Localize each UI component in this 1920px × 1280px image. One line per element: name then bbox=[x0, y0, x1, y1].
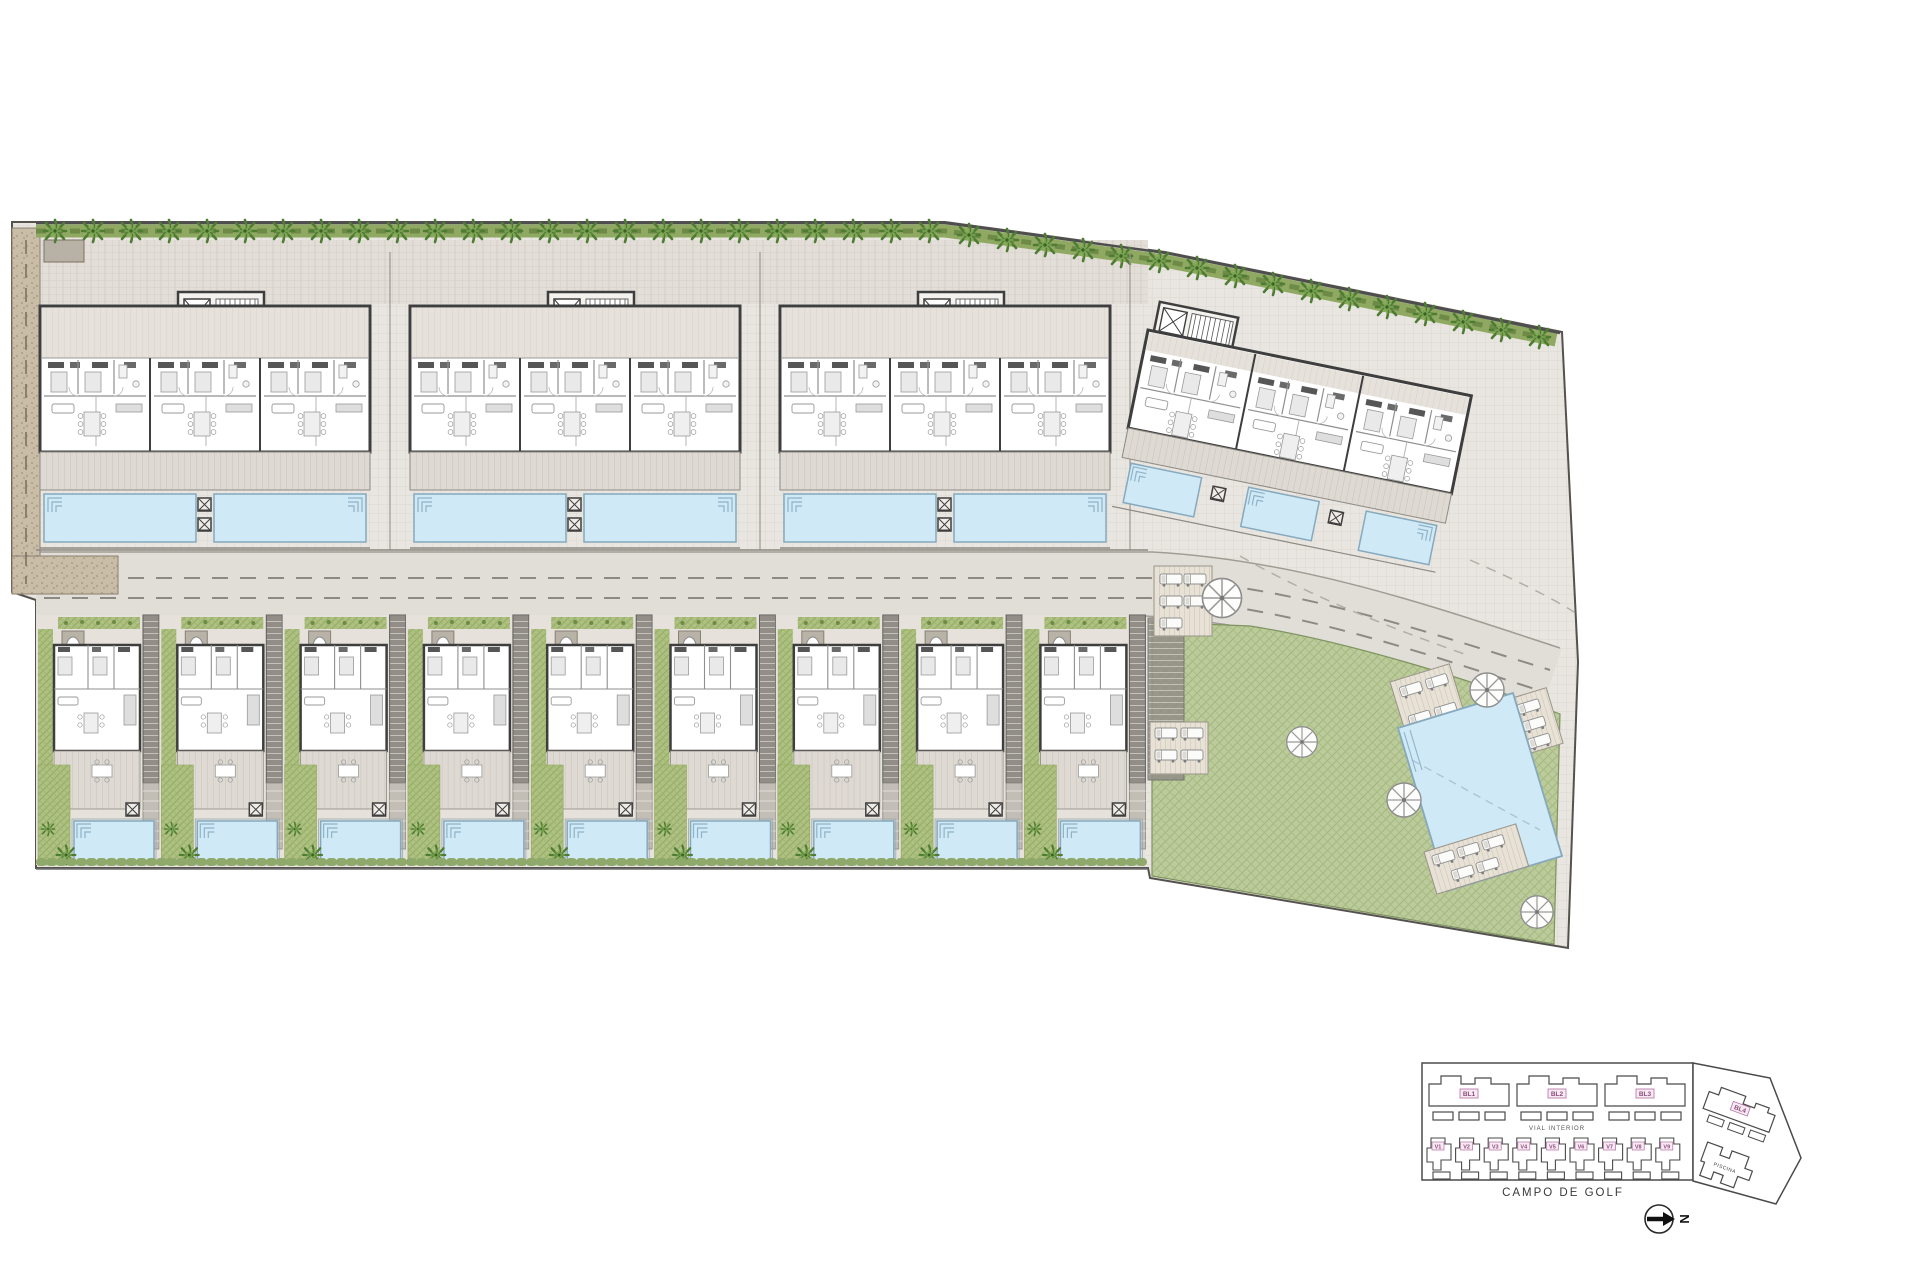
block-bl2 bbox=[410, 292, 740, 548]
villa-label: V3 bbox=[1492, 1144, 1499, 1150]
villa-v2 bbox=[159, 615, 282, 865]
villa-v4 bbox=[406, 615, 529, 865]
villa-label: V5 bbox=[1549, 1144, 1556, 1150]
villa-label: V9 bbox=[1663, 1144, 1670, 1150]
golf-label: CAMPO DE GOLF bbox=[1502, 1187, 1624, 1199]
villa-v1 bbox=[36, 615, 159, 865]
villa-v6 bbox=[653, 615, 776, 865]
main-site bbox=[12, 220, 1578, 948]
keyplan-villa-labels: V1 V2 V3 V4 V5 V6 V7 V8 V9 bbox=[1432, 1142, 1673, 1150]
block-label: BL2 bbox=[1551, 1091, 1564, 1098]
villa-v7 bbox=[776, 615, 899, 865]
villa-v3 bbox=[283, 615, 406, 865]
north-arrow: N bbox=[1645, 1205, 1692, 1233]
villa-row bbox=[36, 615, 1148, 869]
site-plan-page: BL1 BL2 BL3 VIAL INTERIOR V1 bbox=[0, 0, 1920, 1280]
site-plan-drawing: BL1 BL2 BL3 VIAL INTERIOR V1 bbox=[0, 0, 1920, 1280]
key-plan: BL1 BL2 BL3 VIAL INTERIOR V1 bbox=[1422, 1063, 1801, 1233]
villa-v9 bbox=[1022, 615, 1145, 865]
block-label: BL3 bbox=[1639, 1091, 1652, 1098]
block-bl1 bbox=[40, 292, 370, 548]
block-bl3 bbox=[780, 292, 1110, 548]
villa-label: V6 bbox=[1578, 1144, 1585, 1150]
villa-label: V8 bbox=[1635, 1144, 1642, 1150]
villa-label: V1 bbox=[1435, 1144, 1442, 1150]
umbrella-icon bbox=[1521, 896, 1553, 928]
villa-label: V7 bbox=[1606, 1144, 1613, 1150]
villa-label: V4 bbox=[1520, 1144, 1528, 1150]
block-label: BL1 bbox=[1463, 1091, 1476, 1098]
villa-label: V2 bbox=[1463, 1144, 1470, 1150]
keyplan-road-label: VIAL INTERIOR bbox=[1529, 1126, 1585, 1132]
villa-v8 bbox=[899, 615, 1022, 865]
umbrella-icon bbox=[1387, 783, 1421, 817]
umbrella-icon bbox=[1202, 578, 1241, 617]
north-label: N bbox=[1677, 1214, 1692, 1223]
umbrella-icon bbox=[1470, 673, 1504, 707]
villa-v5 bbox=[529, 615, 652, 865]
umbrella-icon bbox=[1287, 727, 1318, 758]
deck-platform bbox=[1150, 722, 1208, 774]
